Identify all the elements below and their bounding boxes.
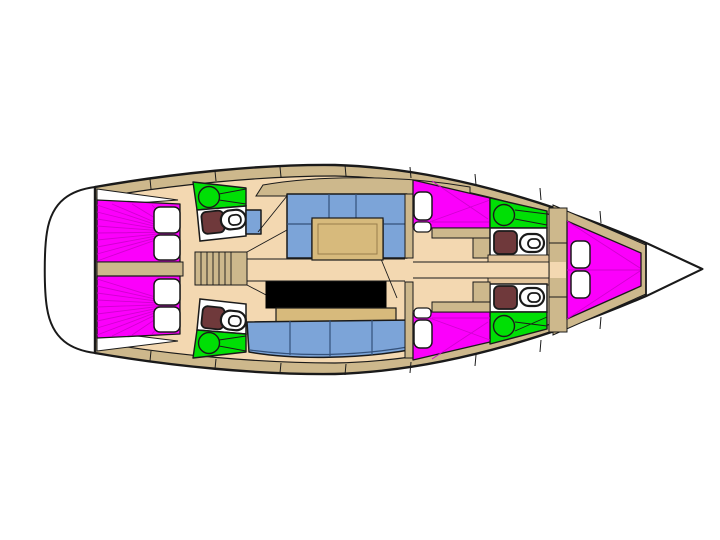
shower-drain: [494, 205, 515, 226]
shower-drain: [199, 333, 220, 354]
floor-plan-canvas: [0, 0, 720, 540]
toilet-seat: [494, 286, 517, 309]
pillow: [154, 279, 180, 305]
pillow: [414, 308, 431, 318]
berth-foot-shelf: [432, 228, 490, 238]
pillow: [571, 241, 590, 268]
toilet-bowl: [220, 209, 247, 231]
pillow: [571, 271, 590, 298]
locker: [473, 282, 490, 302]
wardrobe: [488, 255, 549, 262]
transom: [45, 187, 95, 353]
companionway-stairs: [195, 252, 247, 285]
locker: [473, 238, 490, 258]
galley-counter: [266, 282, 386, 308]
pillow: [154, 235, 180, 260]
bulkhead: [405, 282, 413, 358]
bulkhead: [405, 194, 413, 258]
cabin-door-opening: [550, 262, 566, 278]
toilet-bowl: [220, 310, 247, 332]
anchor-locker: [646, 243, 702, 296]
fwd-cabin: [549, 205, 646, 335]
aft-head-starboard: [193, 299, 247, 358]
pillow: [154, 307, 180, 332]
aft-cabin-starboard: [97, 276, 180, 351]
shower-drain: [199, 187, 220, 208]
berth-foot-shelf: [432, 302, 490, 312]
pillow: [414, 320, 432, 348]
toilet-seat: [494, 231, 517, 254]
aft-cabin-divider: [97, 262, 183, 276]
pillow: [414, 222, 431, 232]
saloon-settee-starboard: [247, 320, 415, 357]
aft-cabin-port: [97, 189, 180, 262]
shower-drain: [494, 316, 515, 337]
pillow: [414, 192, 432, 220]
saloon-table: [312, 218, 383, 260]
pillow: [154, 207, 180, 233]
yacht-floor-plan: [0, 0, 720, 540]
